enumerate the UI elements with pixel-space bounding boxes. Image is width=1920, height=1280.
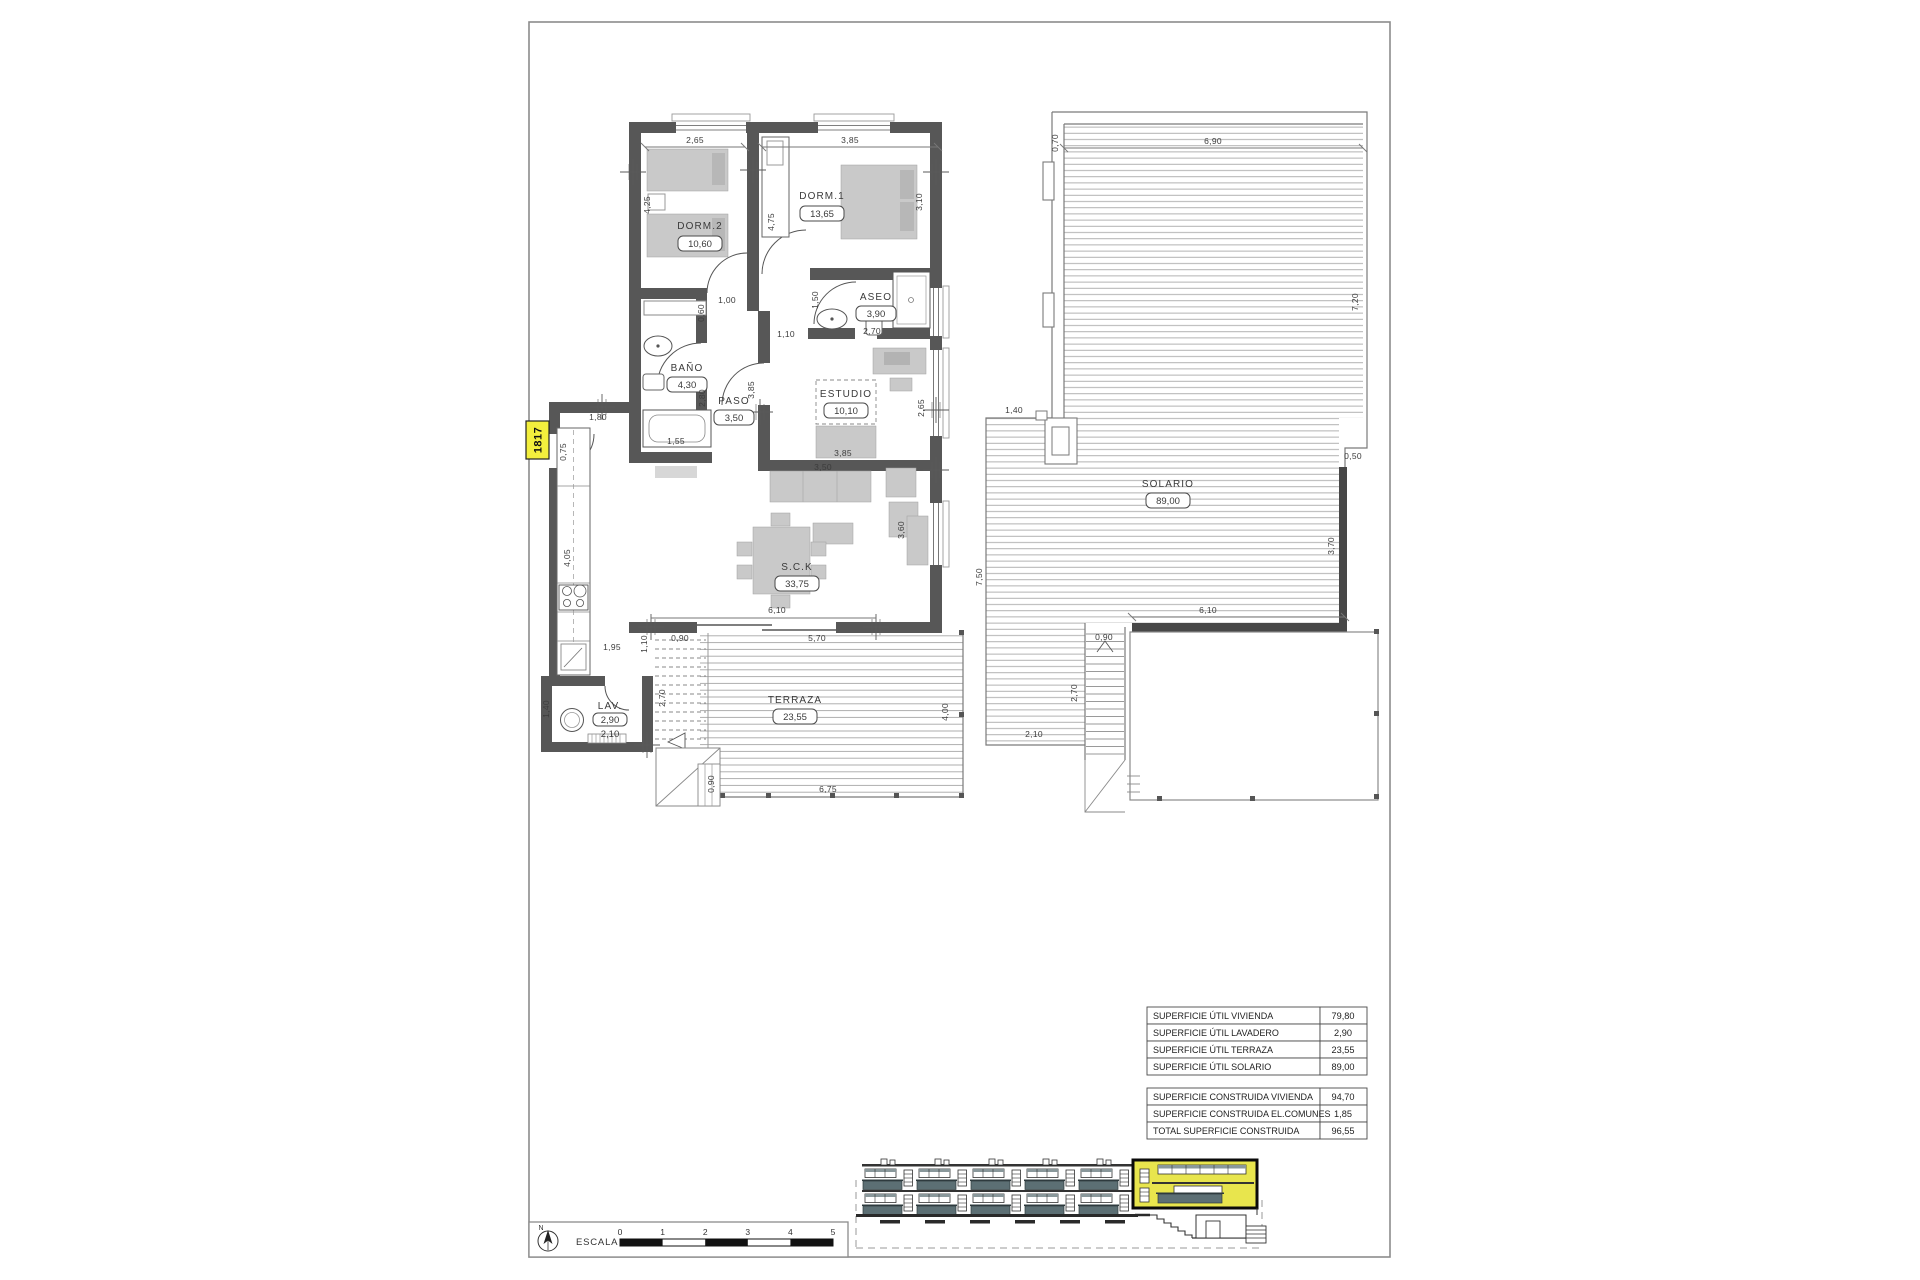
dim-sol-050: 0,50 <box>1344 451 1362 461</box>
dim-closet: 0,60 <box>696 304 706 322</box>
dim-sol-370: 3,70 <box>1326 537 1336 555</box>
chair <box>811 542 826 556</box>
room-label-aseo: ASEO <box>860 292 892 303</box>
chimney-flue <box>1052 427 1069 455</box>
wall-pilaster <box>1043 162 1054 200</box>
washing-machine <box>561 709 584 732</box>
table-row-value: 2,90 <box>1334 1028 1352 1038</box>
table-row-value: 89,00 <box>1332 1062 1355 1072</box>
area-sck: 33,75 <box>785 579 809 590</box>
table-row-label: SUPERFICIE CONSTRUIDA VIVIENDA <box>1153 1092 1313 1102</box>
table-row-label: SUPERFICIE ÚTIL SOLARIO <box>1153 1062 1271 1072</box>
chair <box>737 565 752 579</box>
dim-dorm2-height: 4,25 <box>642 196 652 214</box>
area-terraza: 23,55 <box>783 712 807 723</box>
chair <box>737 542 752 556</box>
area-solario: 89,00 <box>1156 496 1180 507</box>
parapet-wall <box>1339 467 1347 632</box>
dim-sol-210: 2,10 <box>1025 729 1043 739</box>
dim-sck-width: 6,10 <box>768 605 786 615</box>
architectural-drawing: DORM.2 10,60 DORM.1 13,65 ASEO 3,90 BAÑO… <box>0 0 1920 1280</box>
dim-sol-720: 7,20 <box>1350 293 1360 311</box>
dim-terraza-top: 5,70 <box>808 633 826 643</box>
ground-line <box>856 1214 1138 1217</box>
area-lav-2: 2,10 <box>601 729 620 740</box>
room-label-bano: BAÑO <box>671 361 704 374</box>
dim-aseo-width: 2,70 <box>863 326 881 336</box>
toilet <box>643 374 664 390</box>
table-cells <box>1147 1007 1367 1139</box>
dim-sol-070: 0,70 <box>1050 134 1060 152</box>
dim-entry-wall: 1,80 <box>589 412 607 422</box>
dim-sol-610: 6,10 <box>1199 605 1217 615</box>
unit-tag: 1817 <box>526 421 549 459</box>
room-label-estudio: ESTUDIO <box>820 389 872 400</box>
dim-stair-top: 1,10 <box>639 635 649 653</box>
dim-dorm1-width: 3,85 <box>841 135 859 145</box>
area-dorm2: 10,60 <box>688 239 712 250</box>
pillow <box>712 153 725 185</box>
room-label-paso: PASO <box>718 396 749 407</box>
room-label-sck: S.C.K <box>781 562 813 573</box>
table-row-value: 96,55 <box>1332 1126 1355 1136</box>
wall-pilaster <box>1043 293 1054 327</box>
terraza-deck <box>697 625 964 798</box>
dim-lav-left: 1,40 <box>541 700 551 718</box>
dim-paso-right: 1,10 <box>777 329 795 339</box>
area-aseo: 3,90 <box>867 309 886 320</box>
dim-sol-090: 0,90 <box>1095 632 1113 642</box>
table-row-value: 94,70 <box>1332 1092 1355 1102</box>
dim-paso-door: 1,00 <box>718 295 736 305</box>
dim-kitchen-height: 4,05 <box>562 549 572 567</box>
scale-tick-2: 2 <box>703 1227 708 1237</box>
scale-label: ESCALA : <box>576 1237 625 1248</box>
dim-kitchen-clear: 1,95 <box>603 642 621 652</box>
dim-bathtub: 1,55 <box>667 436 685 446</box>
dim-estudio-height: 2,65 <box>916 399 926 417</box>
pillow <box>900 202 914 231</box>
door <box>1206 1221 1220 1238</box>
parapet-wall <box>1132 623 1347 632</box>
dim-sol-270: 2,70 <box>1069 684 1079 702</box>
dim-stair-bottom: 0,90 <box>706 775 716 793</box>
dim-entry-door: 0,75 <box>558 443 568 461</box>
scale-tick-0: 0 <box>618 1227 623 1237</box>
dim-dorm1-depth: 3,10 <box>914 193 924 211</box>
dim-sck-right: 3,60 <box>896 521 906 539</box>
dim-sol-140: 1,40 <box>1005 405 1023 415</box>
coffee-table <box>813 523 853 544</box>
dim-paso-height: 3,85 <box>746 381 756 399</box>
desk-chair <box>890 378 912 391</box>
table-row-label: TOTAL SUPERFICIE CONSTRUIDA <box>1153 1126 1299 1136</box>
shower <box>893 272 930 328</box>
table-row-value: 23,55 <box>1332 1045 1355 1055</box>
area-lav: 2,90 <box>601 715 620 726</box>
doormat <box>655 466 697 478</box>
area-estudio: 10,10 <box>834 406 858 417</box>
area-bano: 4,30 <box>678 380 697 391</box>
scale-tick-3: 3 <box>745 1227 750 1237</box>
table-row-label: SUPERFICIE ÚTIL VIVIENDA <box>1153 1011 1273 1021</box>
dim-stair-width: 0,90 <box>671 633 689 643</box>
floorplan-sheet-page: DORM.2 10,60 DORM.1 13,65 ASEO 3,90 BAÑO… <box>0 0 1920 1280</box>
retaining-steps <box>1246 1226 1266 1243</box>
table-row-label: SUPERFICIE ÚTIL LAVADERO <box>1153 1028 1279 1038</box>
sofa <box>770 471 871 502</box>
north-label: N <box>538 1225 543 1232</box>
dim-estudio-width: 3,85 <box>834 448 852 458</box>
room-label-lav: LAV. <box>598 701 622 712</box>
dim-dorm1-height: 4,75 <box>766 213 776 231</box>
lower-roof-outline <box>1130 632 1378 800</box>
table-row-value: 1,85 <box>1334 1109 1352 1119</box>
scale-box: N ESCALA : 0 1 2 3 4 5 <box>529 1222 848 1257</box>
dim-dorm2-width: 2,65 <box>686 135 704 145</box>
area-paso: 3,50 <box>725 413 744 424</box>
room-label-terraza: TERRAZA <box>768 695 822 706</box>
room-label-dorm1: DORM.1 <box>799 191 845 202</box>
scale-tick-1: 1 <box>660 1227 665 1237</box>
pillow <box>900 170 914 199</box>
dim-aseo-left: 1,50 <box>810 291 820 309</box>
dim-stair-run: 2,70 <box>657 689 667 707</box>
scale-tick-4: 4 <box>788 1227 793 1237</box>
armchair <box>886 468 916 497</box>
area-table: SUPERFICIE ÚTIL VIVIENDA 79,80 SUPERFICI… <box>1147 1007 1367 1139</box>
dim-terraza-width: 6,75 <box>819 784 837 794</box>
tv-unit <box>907 516 928 565</box>
unit-tag-number: 1817 <box>533 427 545 453</box>
post <box>1036 411 1047 420</box>
room-label-solario: SOLARIO <box>1142 479 1194 490</box>
table-row-value: 79,80 <box>1332 1011 1355 1021</box>
highlighted-unit <box>1133 1160 1257 1208</box>
dim-sol-750: 7,50 <box>974 568 984 586</box>
dim-sofa-width: 3,50 <box>814 462 832 472</box>
area-dorm1: 13,65 <box>810 209 834 220</box>
dim-bano-height: 2,80 <box>697 389 707 407</box>
table-row-label: SUPERFICIE CONSTRUIDA EL.COMUNES <box>1153 1109 1331 1119</box>
dim-sol-690: 6,90 <box>1204 136 1222 146</box>
monitor <box>884 352 910 365</box>
table-row-label: SUPERFICIE ÚTIL TERRAZA <box>1153 1045 1273 1055</box>
scale-tick-5: 5 <box>831 1227 836 1237</box>
room-label-dorm2: DORM.2 <box>677 221 723 232</box>
dim-terraza-height: 4,00 <box>940 703 950 721</box>
chair <box>771 513 790 526</box>
